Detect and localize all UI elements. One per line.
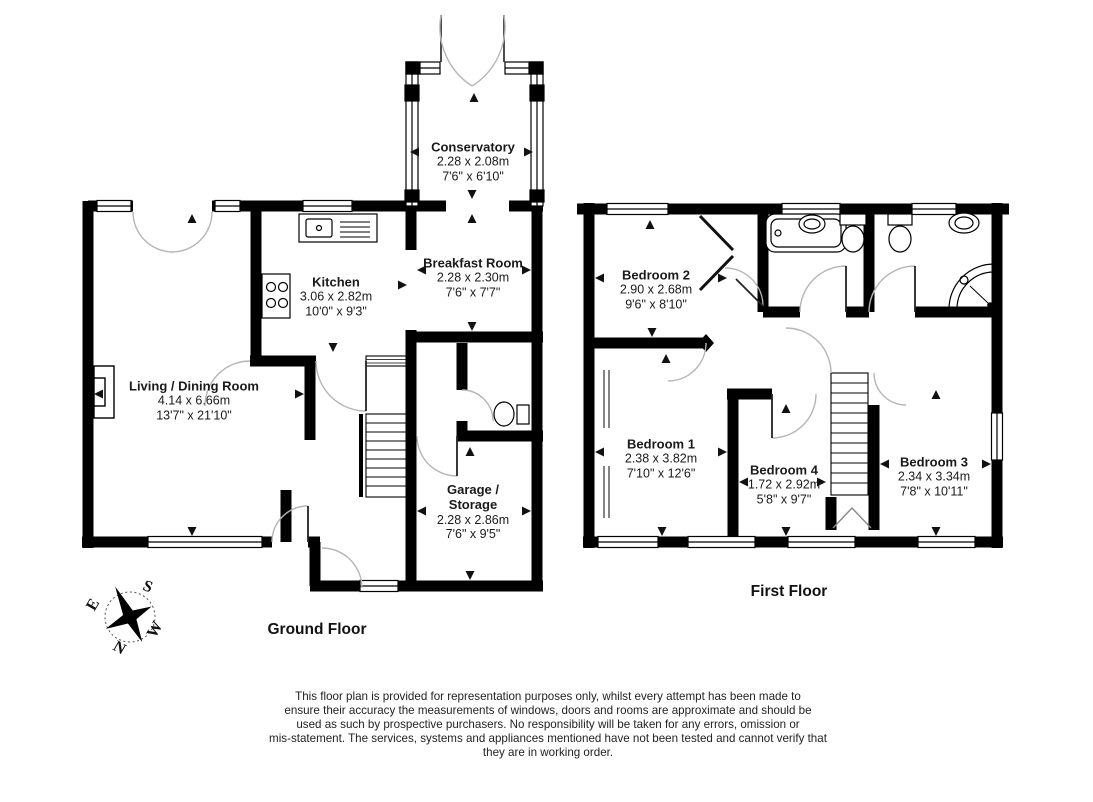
window (598, 537, 658, 548)
room-name: Living / Dining Room (129, 379, 259, 394)
toilet (494, 402, 529, 426)
room-imperial: 13'7" x 21'10" (129, 409, 259, 424)
window (788, 537, 855, 548)
room-metric: 2.28 x 2.08m (431, 155, 515, 170)
window (992, 413, 1003, 460)
room-label-living-dining: Living / Dining Room 4.14 x 6.66m 13'7" … (129, 379, 259, 424)
room-label-bedroom1: Bedroom 1 2.38 x 3.82m 7'10" x 12'6" (625, 437, 697, 482)
room-label-kitchen: Kitchen 3.06 x 2.82m 10'0" x 9'3" (300, 275, 372, 320)
conservatory-french-doors (440, 15, 505, 86)
compass-west: W (144, 619, 167, 641)
room-label-breakfast: Breakfast Room 2.28 x 2.30m 7'6" x 7'7" (423, 256, 523, 301)
room-label-bedroom4: Bedroom 4 1.72 x 2.92m 5'8" x 9'7" (748, 463, 820, 508)
toilet (888, 214, 912, 252)
window (148, 537, 262, 548)
staircase (831, 373, 868, 495)
room-label-garage: Garage / Storage 2.28 x 2.86m 7'6" x 9'5… (437, 482, 509, 542)
wardrobe-lines (604, 370, 609, 518)
room-name: Bedroom 1 (625, 437, 697, 452)
room-name: Conservatory (431, 140, 515, 155)
room-label-conservatory: Conservatory 2.28 x 2.08m 7'6" x 6'10" (431, 140, 515, 185)
cupboard-doors (700, 216, 733, 290)
room-imperial: 7'10" x 12'6" (625, 467, 697, 482)
room-imperial: 7'8" x 10'11" (898, 485, 970, 500)
room-imperial: 10'0" x 9'3" (300, 305, 372, 320)
floorplan-page: S E N W Conservatory 2.28 x 2.08m 7'6" x… (0, 0, 1093, 802)
window (360, 581, 398, 592)
window (688, 537, 755, 548)
disclaimer-text: This floor plan is provided for represen… (248, 690, 848, 760)
room-metric: 2.38 x 3.82m (625, 452, 697, 467)
staircase (361, 356, 412, 497)
corner-shower (949, 264, 994, 309)
room-name: Bedroom 4 (748, 463, 820, 478)
room-metric: 2.28 x 2.30m (423, 271, 523, 286)
room-metric: 4.14 x 6.66m (129, 394, 259, 409)
compass-north: N (110, 638, 129, 659)
sink-unit (299, 214, 377, 242)
window (918, 537, 975, 548)
window (912, 204, 956, 215)
room-metric: 2.34 x 3.34m (898, 470, 970, 485)
room-imperial: 9'6" x 8'10" (620, 298, 692, 313)
room-name: Breakfast Room (423, 256, 523, 271)
room-imperial: 7'6" x 7'7" (423, 286, 523, 301)
room-name: Kitchen (300, 275, 372, 290)
room-label-bedroom3: Bedroom 3 2.34 x 3.34m 7'8" x 10'11" (898, 455, 970, 500)
room-metric: 2.90 x 2.68m (620, 283, 692, 298)
ground-floor-title: Ground Floor (267, 621, 366, 639)
sink (949, 213, 979, 233)
chimney-breast (94, 366, 114, 418)
compass-east: E (83, 596, 103, 614)
room-imperial: 7'6" x 6'10" (431, 170, 515, 185)
sink (799, 215, 825, 233)
first-floor-title: First Floor (751, 583, 828, 601)
window (215, 201, 240, 212)
room-metric: 2.28 x 2.86m (437, 513, 509, 528)
room-metric: 1.72 x 2.92m (748, 478, 820, 493)
room-name: Bedroom 3 (898, 455, 970, 470)
toilet (840, 214, 866, 252)
window (303, 201, 352, 212)
compass-rose: S E N W (83, 575, 166, 658)
room-label-bedroom2: Bedroom 2 2.90 x 2.68m 9'6" x 8'10" (620, 268, 692, 313)
hob (262, 274, 290, 318)
room-imperial: 5'8" x 9'7" (748, 493, 820, 508)
window (782, 204, 840, 215)
patio-door-arcs (133, 212, 212, 252)
room-imperial: 7'6" x 9'5" (437, 527, 509, 542)
compass-south: S (140, 577, 155, 596)
window (607, 204, 668, 215)
ground-floor-door-leaves (308, 361, 457, 542)
room-name: Bedroom 2 (620, 268, 692, 283)
room-name: Garage / Storage (437, 482, 509, 513)
room-metric: 3.06 x 2.82m (300, 290, 372, 305)
window (97, 201, 131, 212)
